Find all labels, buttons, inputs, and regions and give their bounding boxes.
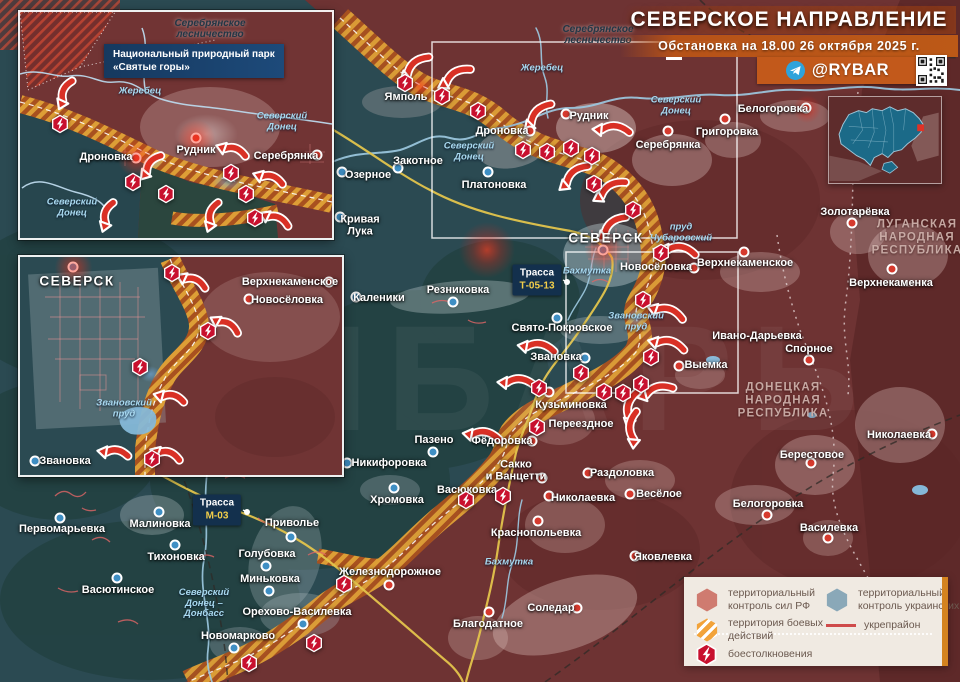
telegram-banner: @RYBAR [757,57,918,84]
legend-label-clash: боестолкновения [728,648,858,661]
ukraine-locator-map [828,96,942,184]
legend-accent-bar [942,577,948,666]
location-marker [917,124,924,131]
inset-serebryanka-forest: ДроновкаРудникСеребрянкаЖеребецСеверский… [18,10,334,240]
legend-swatch-combat [696,618,718,642]
title-block: СЕВЕРСКОЕ НАПРАВЛЕНИЕ Обстановка на 18.0… [620,6,958,57]
map-poster: РЫБАРЬ ЯмпольДроновкаРудникСеребрянкаГри… [0,0,960,682]
legend-swatch-clash [696,643,717,666]
legend-swatch-ua [826,588,848,612]
telegram-handle: @RYBAR [812,61,889,80]
legend-panel: территориальный контроль сил РФ территор… [684,577,948,666]
inset-seversk: СЕВЕРСКВерхнекаменскоеНовосёловкаЗвановк… [18,255,344,477]
map-title: СЕВЕРСКОЕ НАПРАВЛЕНИЕ [622,6,955,34]
legend-swatch-rf [696,588,718,612]
subtitle-dash [666,57,682,60]
legend-swatch-fort [826,620,856,627]
telegram-icon [786,61,805,80]
qr-code [916,55,947,86]
map-subtitle: Обстановка на 18.00 26 октября 2025 г. [620,35,958,57]
